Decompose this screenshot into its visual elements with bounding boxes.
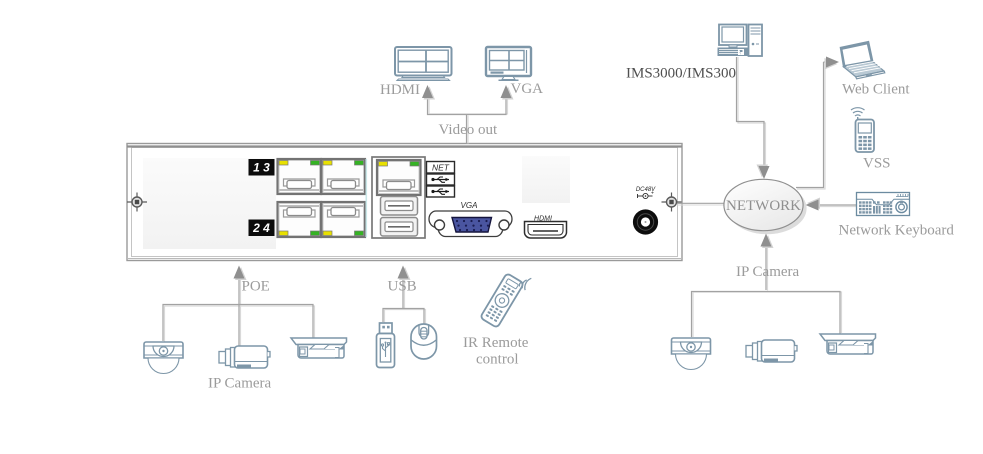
svg-text:POE: POE bbox=[242, 279, 270, 295]
svg-text:NET: NET bbox=[432, 163, 450, 173]
svg-text:IP Camera: IP Camera bbox=[208, 376, 272, 392]
svg-text:IR Remote: IR Remote bbox=[463, 335, 529, 351]
svg-text:VGA: VGA bbox=[511, 81, 544, 97]
svg-text:+: + bbox=[651, 191, 654, 197]
svg-text:control: control bbox=[476, 352, 519, 368]
svg-text:Video out: Video out bbox=[439, 122, 499, 138]
svg-text:IMS3000/IMS300: IMS3000/IMS300 bbox=[626, 66, 736, 82]
svg-text:Web Client: Web Client bbox=[842, 82, 910, 98]
svg-text:HDMI: HDMI bbox=[380, 82, 420, 98]
svg-text:VGA: VGA bbox=[461, 201, 478, 210]
svg-text:USB: USB bbox=[388, 279, 417, 295]
svg-text:1 3: 1 3 bbox=[253, 161, 270, 175]
svg-text:Network Keyboard: Network Keyboard bbox=[839, 223, 955, 239]
svg-text:VSS: VSS bbox=[863, 156, 891, 172]
svg-text:NETWORK: NETWORK bbox=[726, 198, 801, 214]
svg-text:2 4: 2 4 bbox=[252, 221, 270, 235]
svg-text:IP Camera: IP Camera bbox=[736, 264, 800, 280]
